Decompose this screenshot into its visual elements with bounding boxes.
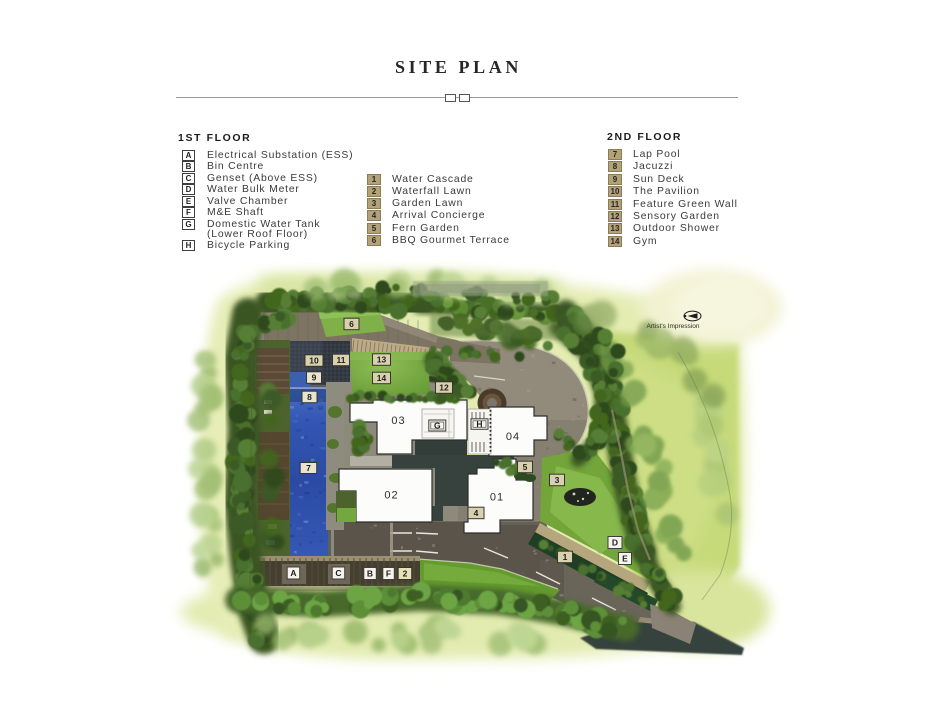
svg-text:6: 6: [349, 319, 354, 329]
svg-text:C: C: [335, 568, 341, 578]
svg-text:04: 04: [506, 431, 520, 443]
svg-text:9: 9: [312, 373, 317, 383]
svg-text:B: B: [367, 569, 373, 579]
svg-text:F: F: [386, 569, 391, 579]
svg-text:D: D: [612, 538, 618, 548]
svg-text:A: A: [290, 568, 296, 578]
svg-text:01: 01: [490, 492, 504, 504]
svg-text:03: 03: [391, 415, 405, 427]
svg-text:E: E: [622, 554, 628, 564]
svg-text:5: 5: [523, 462, 528, 472]
svg-text:7: 7: [306, 463, 311, 473]
svg-text:3: 3: [555, 475, 560, 485]
svg-text:1: 1: [563, 552, 568, 562]
svg-text:4: 4: [474, 508, 479, 518]
svg-text:13: 13: [377, 355, 387, 365]
svg-text:8: 8: [307, 392, 312, 402]
svg-text:10: 10: [309, 356, 319, 366]
svg-text:11: 11: [337, 355, 346, 365]
svg-text:2: 2: [403, 569, 408, 579]
svg-text:G: G: [434, 421, 441, 431]
svg-text:H: H: [476, 419, 482, 429]
svg-text:12: 12: [439, 383, 449, 393]
svg-text:02: 02: [384, 490, 398, 502]
svg-text:14: 14: [377, 373, 387, 383]
svg-text:Artist's Impression: Artist's Impression: [647, 323, 700, 330]
